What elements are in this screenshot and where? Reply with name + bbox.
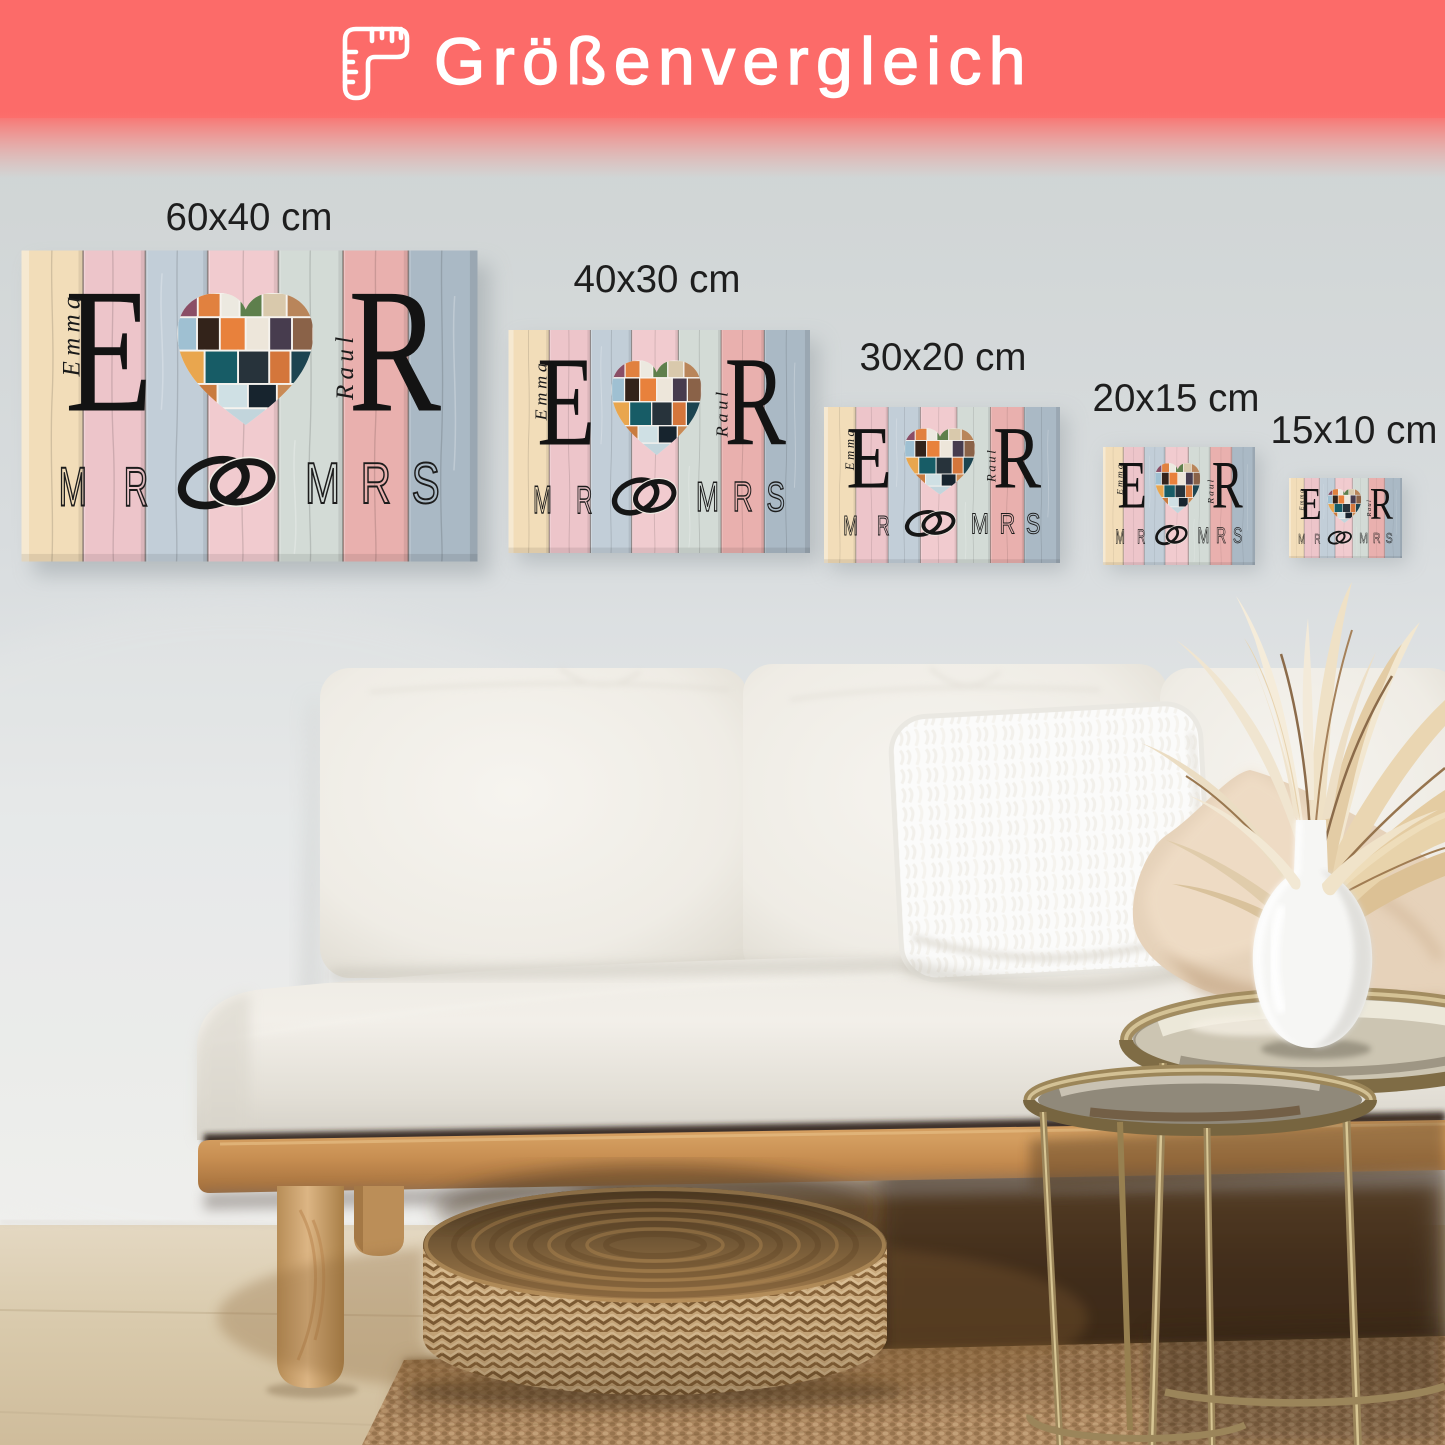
svg-text:Größenvergleich: Größenvergleich <box>434 24 1033 98</box>
svg-text:30x20 cm: 30x20 cm <box>860 336 1027 379</box>
svg-text:20x15 cm: 20x15 cm <box>1093 377 1260 420</box>
svg-text:15x10 cm: 15x10 cm <box>1271 409 1438 452</box>
svg-text:60x40 cm: 60x40 cm <box>166 196 333 239</box>
svg-text:40x30 cm: 40x30 cm <box>574 258 741 301</box>
